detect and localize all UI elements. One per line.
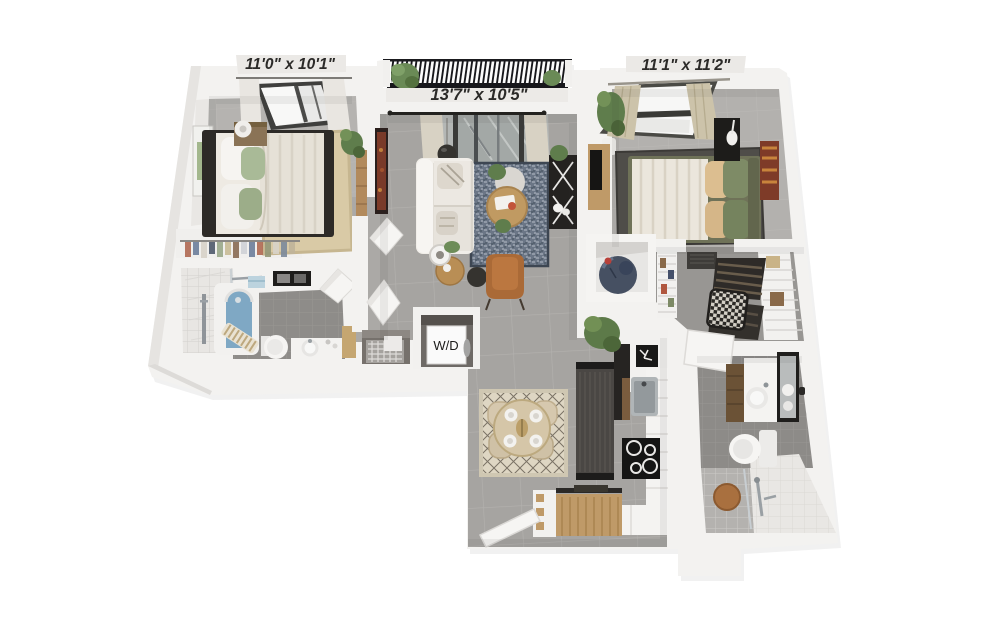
svg-text:13'7" x 10'5": 13'7" x 10'5" [431, 86, 528, 104]
svg-text:11'0" x 10'1": 11'0" x 10'1" [245, 56, 336, 73]
svg-text:11'1" x 11'2": 11'1" x 11'2" [642, 57, 731, 74]
svg-text:W/D: W/D [433, 338, 458, 353]
